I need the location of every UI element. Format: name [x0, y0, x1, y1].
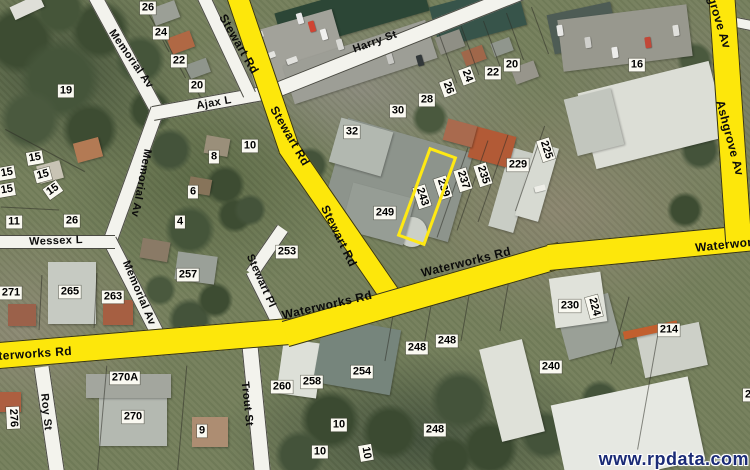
parcel-label-15: 15 — [43, 180, 64, 200]
parcel-label-2: 2 — [743, 389, 750, 402]
parcel-label-8: 8 — [209, 151, 219, 164]
parcel-boundary — [531, 6, 549, 53]
parcel-label-26: 26 — [64, 215, 80, 228]
road-label-wessex-l: Wessex L — [29, 234, 83, 248]
parcel-label-28: 28 — [419, 94, 435, 107]
tree — [165, 205, 215, 255]
parcel-label-10: 10 — [331, 419, 347, 432]
parcel-label-26: 26 — [140, 2, 156, 15]
parcel-label-16: 16 — [629, 59, 645, 72]
parcel-label-26: 26 — [439, 78, 457, 98]
parcel-label-22: 22 — [171, 55, 187, 68]
parcel-label-229: 229 — [507, 159, 529, 172]
parcel-label-24: 24 — [458, 66, 476, 86]
parcel-label-10: 10 — [312, 446, 328, 459]
parcel-boundary — [38, 275, 42, 330]
parcel-label-248: 248 — [406, 342, 428, 355]
tree — [197, 282, 233, 318]
parcel-label-15: 15 — [0, 182, 16, 198]
parcel-label-10: 10 — [358, 444, 374, 462]
parcel-label-240: 240 — [540, 361, 562, 374]
parcel-label-270A: 270A — [110, 372, 140, 385]
parcel-label-19: 19 — [58, 85, 74, 98]
parcel-label-248: 248 — [424, 424, 446, 437]
parcel-label-15: 15 — [26, 150, 44, 166]
parcel-label-4: 4 — [175, 216, 185, 229]
parcel-label-263: 263 — [102, 291, 124, 304]
parcel-label-265: 265 — [59, 286, 81, 299]
parcel-label-258: 258 — [301, 376, 323, 389]
parcel-label-30: 30 — [390, 105, 406, 118]
parcel-label-32: 32 — [344, 126, 360, 139]
parcel-label-214: 214 — [658, 324, 680, 337]
tree — [428, 436, 472, 470]
parcel-label-257: 257 — [177, 269, 199, 282]
parcel-label-20: 20 — [504, 59, 520, 72]
parcel-label-271: 271 — [0, 287, 22, 300]
parcel-label-230: 230 — [559, 300, 581, 313]
tree — [667, 192, 703, 228]
parcel-label-11: 11 — [6, 216, 22, 229]
parcel-label-254: 254 — [351, 366, 373, 379]
parcel-label-20: 20 — [189, 80, 205, 93]
aerial-map-canvas[interactable]: Stewart RdStewart RdStewart RdHarry StAj… — [0, 0, 750, 470]
building — [139, 238, 170, 263]
building — [8, 304, 36, 326]
parcel-label-276: 276 — [6, 406, 20, 429]
parcel-label-10: 10 — [242, 140, 258, 153]
tree — [234, 194, 266, 226]
parcel-label-249: 249 — [374, 207, 396, 220]
parcel-label-248: 248 — [436, 335, 458, 348]
rpdata-watermark: www.rpdata.com — [599, 449, 749, 470]
parcel-boundary — [1, 206, 59, 210]
parcel-label-24: 24 — [153, 27, 169, 40]
parcel-label-253: 253 — [276, 246, 298, 259]
building — [443, 118, 478, 147]
parcel-label-260: 260 — [271, 381, 293, 394]
parcel-label-6: 6 — [188, 186, 198, 199]
parcel-label-15: 15 — [0, 165, 16, 181]
parcel-label-22: 22 — [485, 67, 501, 80]
parcel-boundary — [177, 365, 188, 470]
parcel-label-235: 235 — [473, 162, 492, 187]
road-waterworks-rd-mid — [282, 242, 565, 347]
parcel-label-270: 270 — [122, 411, 144, 424]
parcel-label-9: 9 — [197, 425, 207, 438]
